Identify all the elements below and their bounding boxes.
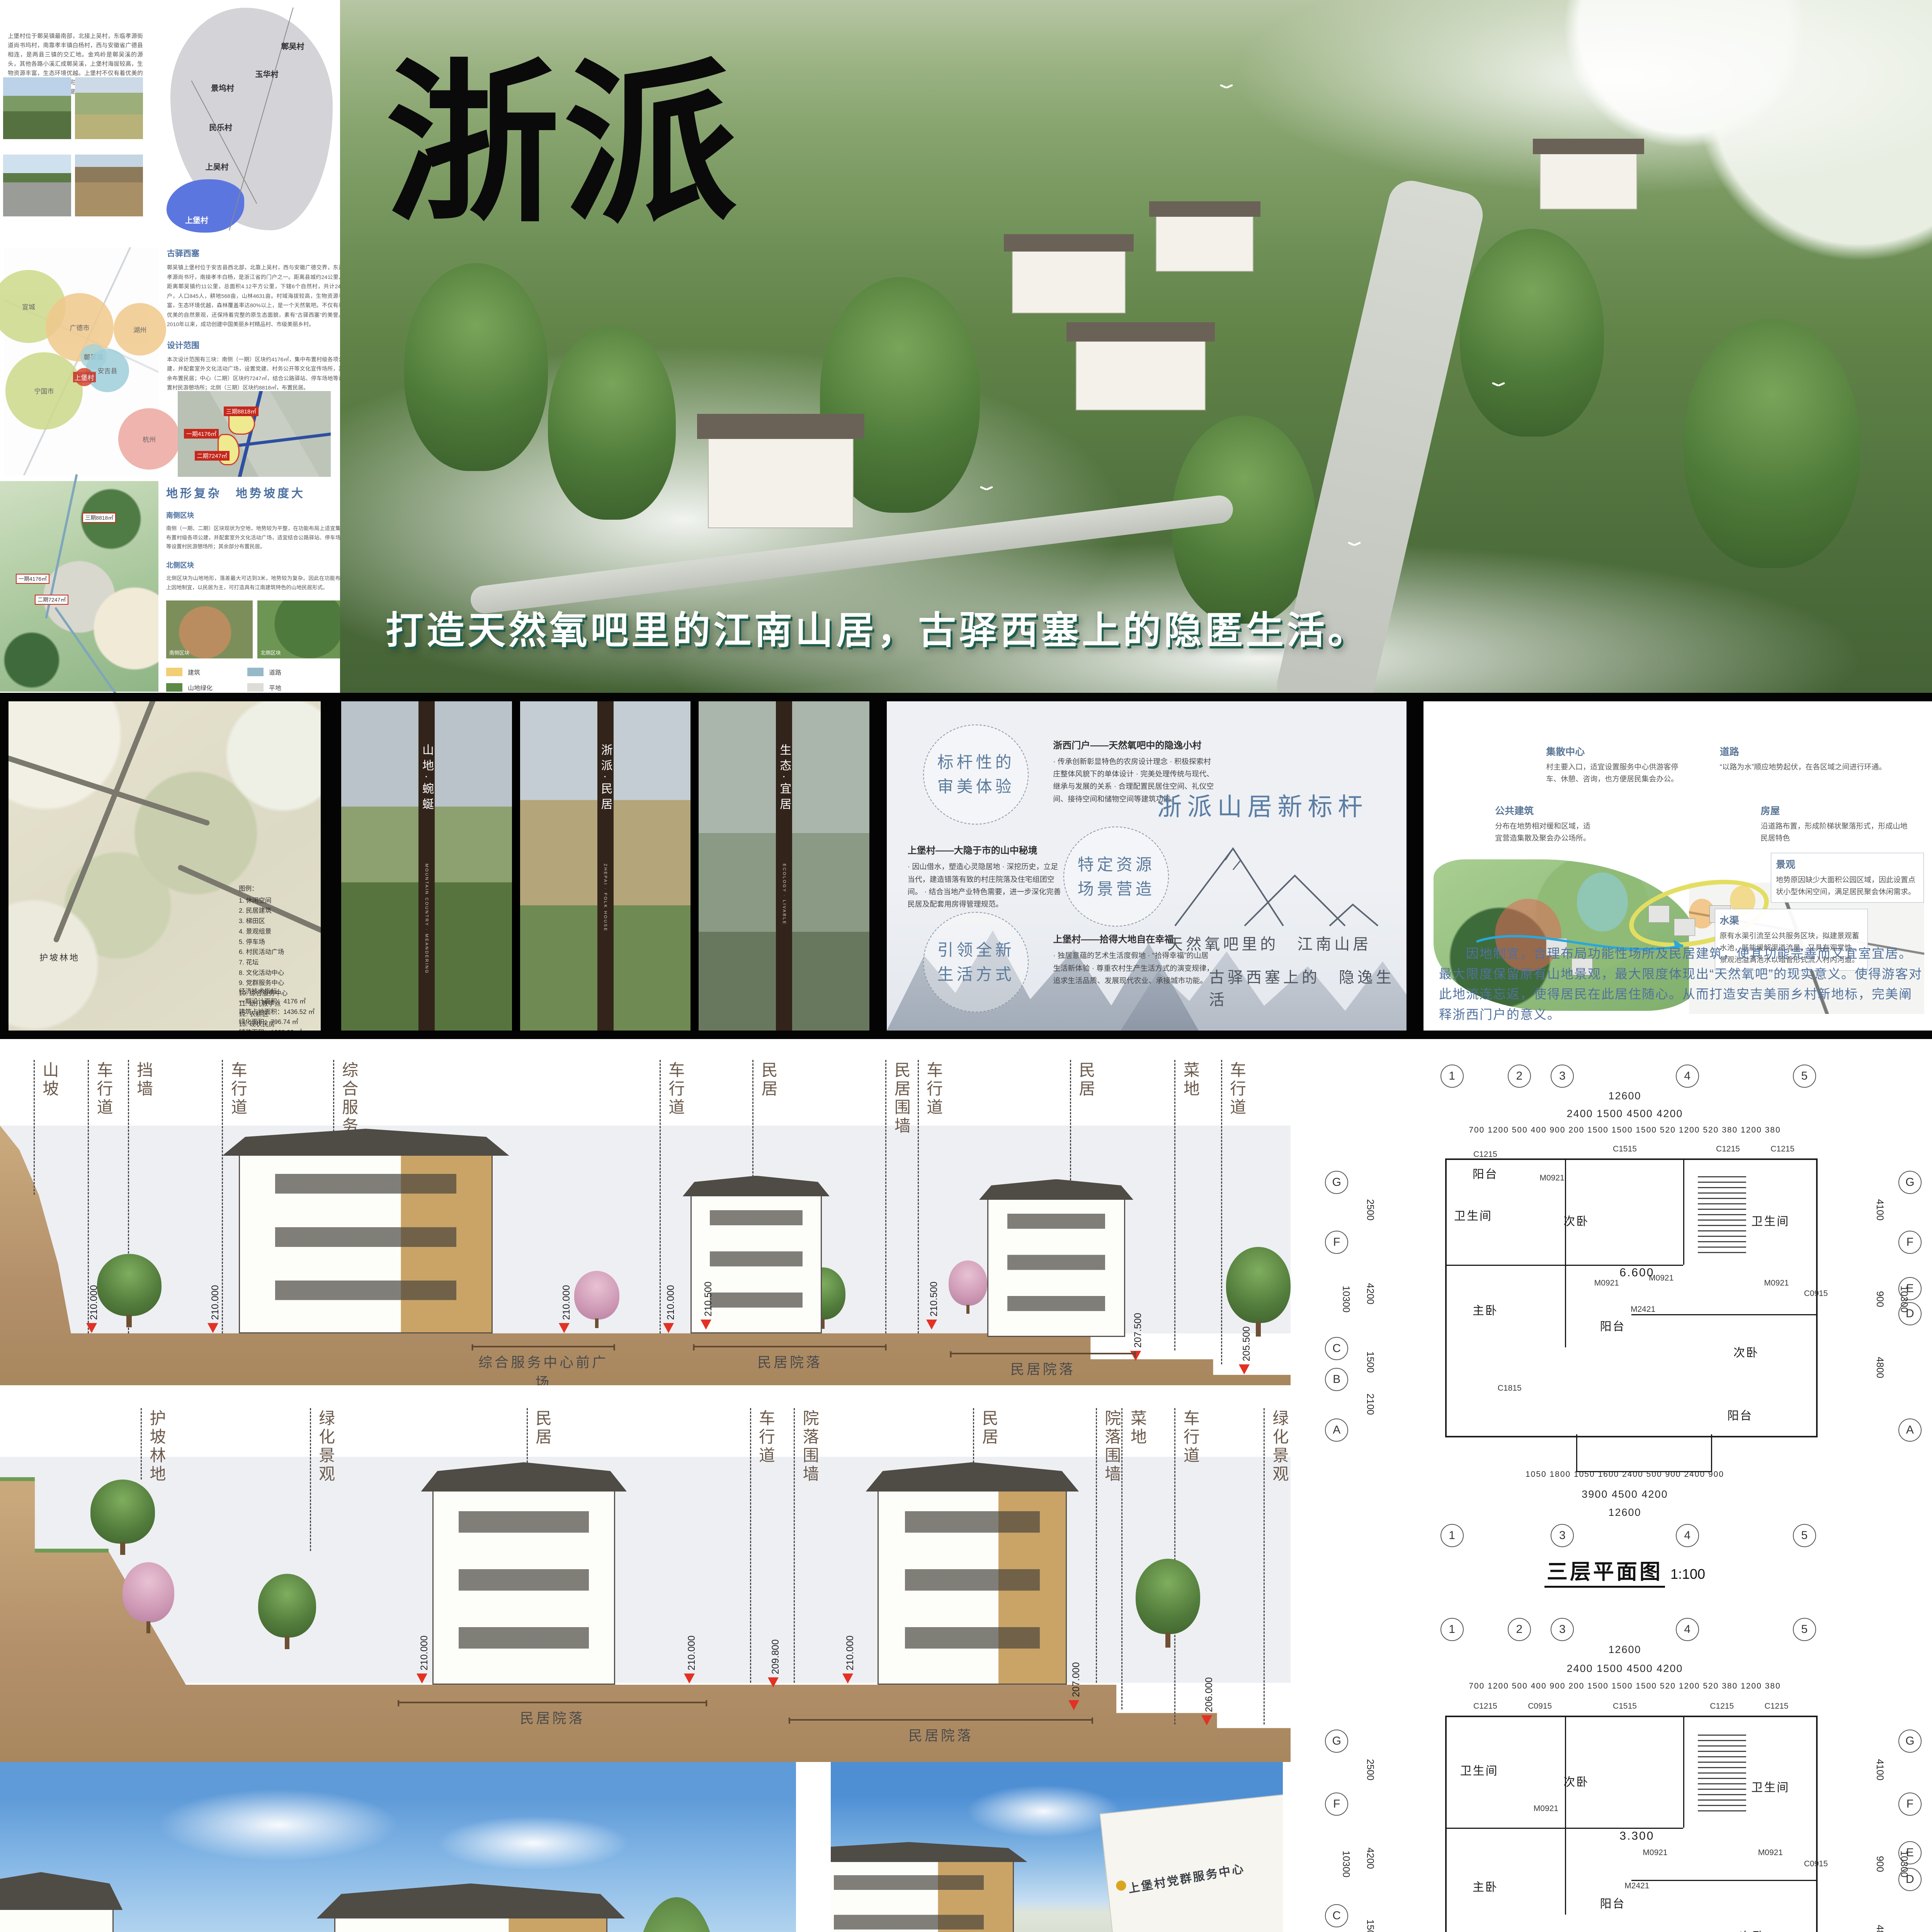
section-gridline: 山坡	[34, 1060, 35, 1195]
section-gridline: 护坡林地	[141, 1408, 142, 1480]
diagram-callout: 景观 地势原因缺少大面积公园区域，因此设置点状小型休闲空间，满足居民聚会休闲需求…	[1771, 853, 1924, 903]
section-gridline: 车行道	[660, 1060, 661, 1333]
grid-bubble: A	[1325, 1418, 1348, 1442]
elevation-marker-icon	[842, 1673, 853, 1684]
mountain-sketch-icon	[1167, 833, 1384, 934]
legend-row: 道路	[247, 667, 328, 677]
section-gridline: 绿化景观	[310, 1408, 311, 1551]
door-window-code: C1215	[1716, 1145, 1740, 1154]
room-label: 次卧	[1740, 1927, 1765, 1932]
door-window-code: C0915	[1528, 1702, 1552, 1711]
region-bubble: 宁国市	[5, 352, 83, 430]
grid-bubble: G	[1898, 1730, 1922, 1753]
section-heading: 设计范围	[167, 339, 344, 351]
legend-item: 8. 文化活动中心	[239, 968, 319, 978]
section-caption: 民居院落	[789, 1719, 1093, 1745]
legend-item: 6. 村民活动广场	[239, 947, 319, 957]
elevation-marker-icon	[663, 1323, 674, 1333]
watercolor-topo-map: 三期8818㎡一期4176㎡二期7247㎡	[0, 481, 158, 692]
grid-bubble: A	[1898, 1418, 1922, 1442]
door-window-code: M0921	[1594, 1279, 1619, 1288]
door-window-code: M2421	[1624, 1881, 1649, 1891]
grid-bubble: B	[1325, 1368, 1348, 1391]
concept-slogan: 浙派山居新标杆	[1157, 787, 1368, 823]
diagram-callout: 道路 “以路为水”顺应地势起伏，在各区域之间进行环通。	[1720, 744, 1893, 773]
legend-item: 4. 景观组景	[239, 927, 319, 937]
room-label: 阳台	[1727, 1406, 1753, 1423]
render-village-street	[0, 1762, 796, 1932]
elevation-marker-icon	[86, 1323, 97, 1333]
diagram-callout: 房屋 沿道路布置，形成阶梯状聚落形式，形成山地民居特色	[1761, 803, 1914, 845]
room-label: 阳台	[1473, 1165, 1498, 1182]
grid-bubble: C	[1325, 1337, 1348, 1360]
elevation-marker-icon	[1068, 1700, 1079, 1710]
floor-plan-3f: 126002400 1500 4500 4200700 1200 500 400…	[1321, 1063, 1928, 1588]
plan-building-outline	[1445, 1716, 1818, 1932]
party-emblem-icon	[1116, 1880, 1127, 1891]
concept-photo: 山地·蜿蜒 MOUNTAIN COUNTRY · MEANDERING	[341, 701, 512, 1031]
analysis-band: 护坡林地 图例： 1. 休闲空间2. 民居建筑3. 梯田区4. 景观组景5. 停…	[0, 693, 1932, 1039]
region-bubble: 上堡村	[75, 368, 94, 386]
legend-row: 山地绿化	[166, 683, 247, 692]
section-building-service-center	[239, 1151, 493, 1333]
grid-bubble: 4	[1676, 1618, 1699, 1641]
section-building-house	[987, 1196, 1125, 1337]
legend-item: 7. 花坛	[239, 957, 319, 968]
section-gridline: 菜地	[1121, 1408, 1122, 1709]
hero-render: 浙派 生态“山居” 打造天然氧吧里的江南山居，古驿西塞上的隐匿生活。	[340, 0, 1932, 693]
door-window-code: C0915	[1804, 1289, 1828, 1298]
concept-circle: 特定资源场景营造	[1063, 827, 1169, 927]
section-building-house	[878, 1486, 1067, 1685]
site-section-2: 护坡林地绿化景观民居车行道院落围墙民居院落围墙菜地车行道绿化景观 210.000…	[0, 1385, 1291, 1762]
grid-bubble: 3	[1551, 1524, 1574, 1547]
section-caption: 民居院落	[950, 1353, 1136, 1378]
metric-line: 绿化面积：796.74 ㎡	[239, 1017, 321, 1027]
room-label: 次卧	[1733, 1343, 1759, 1360]
diagram-callout: 集散中心 村主要入口，适宜设置服务中心供游客停车、休憩、咨询，也方便居民集会办公…	[1546, 744, 1679, 786]
level-mark: 3.300	[1619, 1830, 1654, 1843]
door-window-code: C1215	[1770, 1145, 1794, 1154]
aerial-photo-north: 北侧区块	[257, 600, 344, 658]
phase-label: 一期4176㎡	[16, 574, 49, 584]
metric-line: 经济技术指标：	[239, 986, 321, 997]
door-window-code: C0915	[1804, 1859, 1828, 1869]
grid-bubble: F	[1898, 1231, 1922, 1254]
metric-line: 建筑占地面积：1436.52 ㎡	[239, 1007, 321, 1017]
level-mark: 6.600	[1619, 1266, 1654, 1279]
grid-bubble: 2	[1508, 1618, 1531, 1641]
left-text-sections: 古驿西塞 鄣吴镇上堡村位于安吉县西北部，北靠上吴村，西与安徽广德交界，东连孝源尚…	[167, 247, 344, 403]
aerial-photo-south: 南侧区块	[166, 600, 253, 658]
grid-bubble: 1	[1440, 1524, 1464, 1547]
door-window-code: C1215	[1473, 1702, 1497, 1711]
elevation-marker-icon	[417, 1673, 427, 1684]
room-label: 卫生间	[1460, 1761, 1498, 1778]
grid-bubble: 1	[1440, 1065, 1464, 1088]
section-body: 鄣吴镇上堡村位于安吉县西北部，北靠上吴村，西与安徽广德交界，东连孝源尚书圩，南接…	[167, 263, 344, 329]
panel-axon-diagram: 集散中心 村主要入口，适宜设置服务中心供游客停车、休憩、咨询，也方便居民集会办公…	[1423, 701, 1932, 1031]
section-gridline: 民居围墙	[885, 1060, 886, 1333]
legend-row: 建筑	[166, 667, 247, 677]
grid-bubble: 3	[1551, 1618, 1574, 1641]
room-label: 阳台	[1600, 1317, 1626, 1334]
legend-swatch	[166, 668, 182, 676]
photo-caption: 路	[33, 216, 41, 216]
metric-line: 一期设计面积：4176 ㎡	[239, 997, 321, 1007]
grid-bubble: 4	[1676, 1065, 1699, 1088]
grid-bubble: 4	[1676, 1524, 1699, 1547]
room-label: 主卧	[1473, 1301, 1498, 1318]
north-heading: 北侧区块	[166, 560, 346, 570]
floor-plan-2f: 126002400 1500 4500 4200700 1200 500 400…	[1321, 1615, 1928, 1932]
door-window-code: C1815	[1498, 1384, 1522, 1393]
grid-bubble: G	[1898, 1171, 1922, 1194]
elevation-marker-icon	[768, 1677, 779, 1687]
panel-concept: 标杆性的审美体验特定资源场景营造引领全新生活方式 浙西门户——天然氧吧中的隐逸小…	[887, 701, 1406, 1031]
room-label: 次卧	[1563, 1212, 1589, 1229]
room-label: 卫生间	[1751, 1778, 1789, 1795]
concept-photo: 生态·宜居 ECOLOGY · LIVABLE	[699, 701, 869, 1031]
site-photo-field: 田	[75, 77, 143, 139]
village-label: 民乐村	[209, 121, 232, 133]
village-label: 上堡村	[185, 214, 208, 225]
section-building-house	[432, 1486, 616, 1685]
elevation-marker-icon	[1201, 1715, 1212, 1725]
terrain-heading: 地形复杂 地势坡度大	[166, 484, 346, 501]
village-label: 玉华村	[255, 68, 279, 79]
elevation-marker-icon	[684, 1673, 695, 1684]
bird-icon	[1220, 83, 1233, 89]
hero-subtitle: 打造天然氧吧里的江南山居，古驿西塞上的隐匿生活。	[386, 600, 1699, 655]
north-body: 北侧区块为山地地形，落差最大可达到3米，地势较为复杂。因此在功能布局上因地制宜，…	[166, 574, 346, 592]
grid-bubble: 5	[1793, 1524, 1816, 1547]
grid-bubble: 3	[1551, 1065, 1574, 1088]
door-window-code: M0921	[1764, 1279, 1789, 1288]
section-gridline: 绿化景观	[1264, 1408, 1265, 1725]
bird-icon	[980, 485, 993, 491]
elevation-marker-icon	[207, 1323, 218, 1333]
section-gridline: 院落围墙	[794, 1408, 795, 1683]
village-boundary-map: 鄣吴村玉华村景坞村民乐村上吴村上堡村	[159, 3, 344, 235]
bird-icon	[1348, 541, 1361, 547]
section-body: 本次设计范围有三块：南侧（一期）区块约4176㎡，集中布置村级各项公建，并配套室…	[167, 355, 344, 393]
diagram-footer: 因地制宜，合理布局功能性场所及民居建筑，使其功能完善而又宜室宜居。最大限度保留原…	[1439, 944, 1923, 1025]
region-bubble: 杭州	[118, 408, 180, 469]
photo-caption: 林	[33, 139, 41, 139]
concept-circle: 引领全新生活方式	[923, 912, 1029, 1012]
plan-building-outline	[1445, 1158, 1818, 1437]
elevation-marker-icon	[701, 1320, 711, 1330]
title-strip: 生态·宜居 ECOLOGY · LIVABLE	[776, 701, 792, 1031]
section-caption: 综合服务中心前广场	[472, 1346, 615, 1385]
legend-row: 平地	[247, 683, 328, 692]
section-gridline: 车行道	[918, 1060, 919, 1333]
grid-bubble: 2	[1508, 1065, 1531, 1088]
door-window-code: M0921	[1534, 1804, 1558, 1813]
section-gridline: 车行道	[1221, 1060, 1222, 1364]
siteplan-metrics: 经济技术指标：一期设计面积：4176 ㎡建筑占地面积：1436.52 ㎡绿化面积…	[239, 986, 321, 1031]
room-label: 卫生间	[1751, 1212, 1789, 1229]
title-strip: 浙派·民居 ZHEPAI · FOLK HOUSE	[597, 701, 614, 1031]
door-window-code: C1515	[1613, 1145, 1637, 1154]
village-label: 上吴村	[206, 161, 229, 172]
bird-icon	[1492, 381, 1505, 387]
grid-bubble: 5	[1793, 1618, 1816, 1641]
door-window-code: C1215	[1710, 1702, 1734, 1711]
region-bubble: 湖州	[114, 303, 166, 356]
plan-caption: 三层平面图1:100	[1321, 1554, 1928, 1585]
grid-bubble: 1	[1440, 1618, 1464, 1641]
legend-swatch	[247, 668, 264, 676]
south-body: 南侧（一期、二期）区块现状为空地，地势较为平整，在功能布局上适宜集中布置村级各项…	[166, 524, 346, 551]
concept-photo: 浙派·民居 ZHEPAI · FOLK HOUSE	[520, 701, 691, 1031]
door-window-code: C1515	[1613, 1702, 1637, 1711]
main-title: 浙派	[386, 58, 741, 232]
elevation-marker-icon	[1239, 1364, 1250, 1374]
diagram-callout: 公共建筑 分布在地势相对缓和区域，适宜营造集散及聚会办公场所。	[1495, 803, 1597, 845]
section-gridline: 车行道	[750, 1408, 751, 1683]
phase-label: 二期7247㎡	[35, 595, 68, 605]
concept-line: 天然氧吧里的 江南山居	[1167, 932, 1371, 954]
grid-bubble: F	[1325, 1793, 1348, 1816]
grid-bubble: F	[1325, 1231, 1348, 1254]
photo-caption: 房	[105, 216, 113, 216]
title-strip: 山地·蜿蜒 MOUNTAIN COUNTRY · MEANDERING	[418, 701, 435, 1031]
phase-label: 二期7247㎡	[195, 451, 230, 461]
section-gridline: 院落围墙	[1096, 1408, 1097, 1683]
slope-label: 护坡林地	[39, 951, 80, 963]
village-label: 鄣吴村	[281, 40, 304, 51]
site-section-1: 山坡车行道挡墙车行道综合服务中心车行道民居民居围墙车行道民居菜地车行道 210.…	[0, 1039, 1291, 1385]
section-gridline: 车行道	[222, 1060, 223, 1333]
phase-label: 三期8818㎡	[82, 513, 116, 523]
door-window-code: C1215	[1473, 1150, 1497, 1159]
render-party-service-center: 上堡村党群服务中心	[831, 1762, 1283, 1932]
section-heading: 古驿西塞	[167, 247, 344, 259]
panel-siteplan: 护坡林地 图例： 1. 休闲空间2. 民居建筑3. 梯田区4. 景观组景5. 停…	[9, 701, 321, 1031]
site-photo-road: 路	[3, 155, 71, 216]
legend-swatch	[166, 683, 182, 692]
village-label: 景坞村	[211, 82, 234, 93]
metric-line: 铺装面积：1062.66 ㎡	[239, 1027, 321, 1031]
door-window-code: C1215	[1765, 1702, 1789, 1711]
map-legend: 建筑道路山地绿化平地	[166, 667, 328, 692]
grid-bubble: G	[1325, 1730, 1348, 1753]
region-bubble-map: 宣城广德市宁国市鄣吴镇安吉县上堡村湖州杭州	[4, 247, 158, 475]
concept-text-block: 上堡村——大隐于市的山中秘境 · 因山借水，塑造心灵隐居地 · 深挖历史，立足当…	[908, 843, 1064, 911]
terrain-analysis-block: 地形复杂 地势坡度大 南侧区块 南侧（一期、二期）区块现状为空地，地势较为平整，…	[166, 484, 346, 692]
concept-line: 古驿西塞上的 隐逸生活	[1209, 965, 1406, 1010]
panel-photo-strips: 山地·蜿蜒 MOUNTAIN COUNTRY · MEANDERING 浙派·民…	[341, 701, 869, 1031]
elevation-marker-icon	[926, 1320, 937, 1330]
site-photo-house: 房	[75, 155, 143, 216]
legend-item: 3. 梯田区	[239, 916, 319, 927]
door-window-code: M0921	[1643, 1848, 1667, 1857]
legend-item: 2. 民居建筑	[239, 906, 319, 916]
room-label: 次卧	[1563, 1772, 1589, 1789]
grid-bubble: 5	[1793, 1065, 1816, 1088]
legend-swatch	[247, 683, 264, 692]
photo-caption: 田	[105, 139, 113, 139]
legend-item: 1. 休闲空间	[239, 896, 319, 906]
grid-bubble: F	[1898, 1793, 1922, 1816]
phase-label: 三期8818㎡	[224, 406, 259, 416]
concept-circle: 标杆性的审美体验	[923, 724, 1029, 825]
grid-bubble: G	[1325, 1171, 1348, 1194]
elevation-marker-icon	[559, 1323, 570, 1333]
grid-bubble: C	[1325, 1904, 1348, 1927]
party-center-sign: 上堡村党群服务中心	[1127, 1859, 1247, 1896]
section-caption: 民居院落	[398, 1702, 707, 1727]
satellite-phasing-map: 三期8818㎡一期4176㎡二期7247㎡	[178, 391, 331, 477]
section-caption: 民居院落	[693, 1346, 887, 1371]
door-window-code: M0921	[1758, 1848, 1783, 1857]
section-gridline: 菜地	[1174, 1060, 1175, 1351]
room-label: 阳台	[1600, 1894, 1626, 1911]
site-photo-forest: 林	[3, 77, 71, 139]
phase-label: 一期4176㎡	[184, 429, 219, 439]
door-window-code: M2421	[1631, 1305, 1655, 1314]
room-label: 主卧	[1473, 1878, 1498, 1895]
presentation-board: 上堡村位于鄣吴镇最南部，北接上吴村，东临孝源街道尚书坞村，南靠孝丰镇白杨村，西与…	[0, 0, 1932, 1932]
south-heading: 南侧区块	[166, 510, 346, 520]
region-bubble: 安吉县	[86, 349, 129, 392]
door-window-code: M0921	[1539, 1173, 1564, 1183]
legend-item: 5. 停车场	[239, 937, 319, 947]
room-label: 卫生间	[1454, 1206, 1492, 1223]
